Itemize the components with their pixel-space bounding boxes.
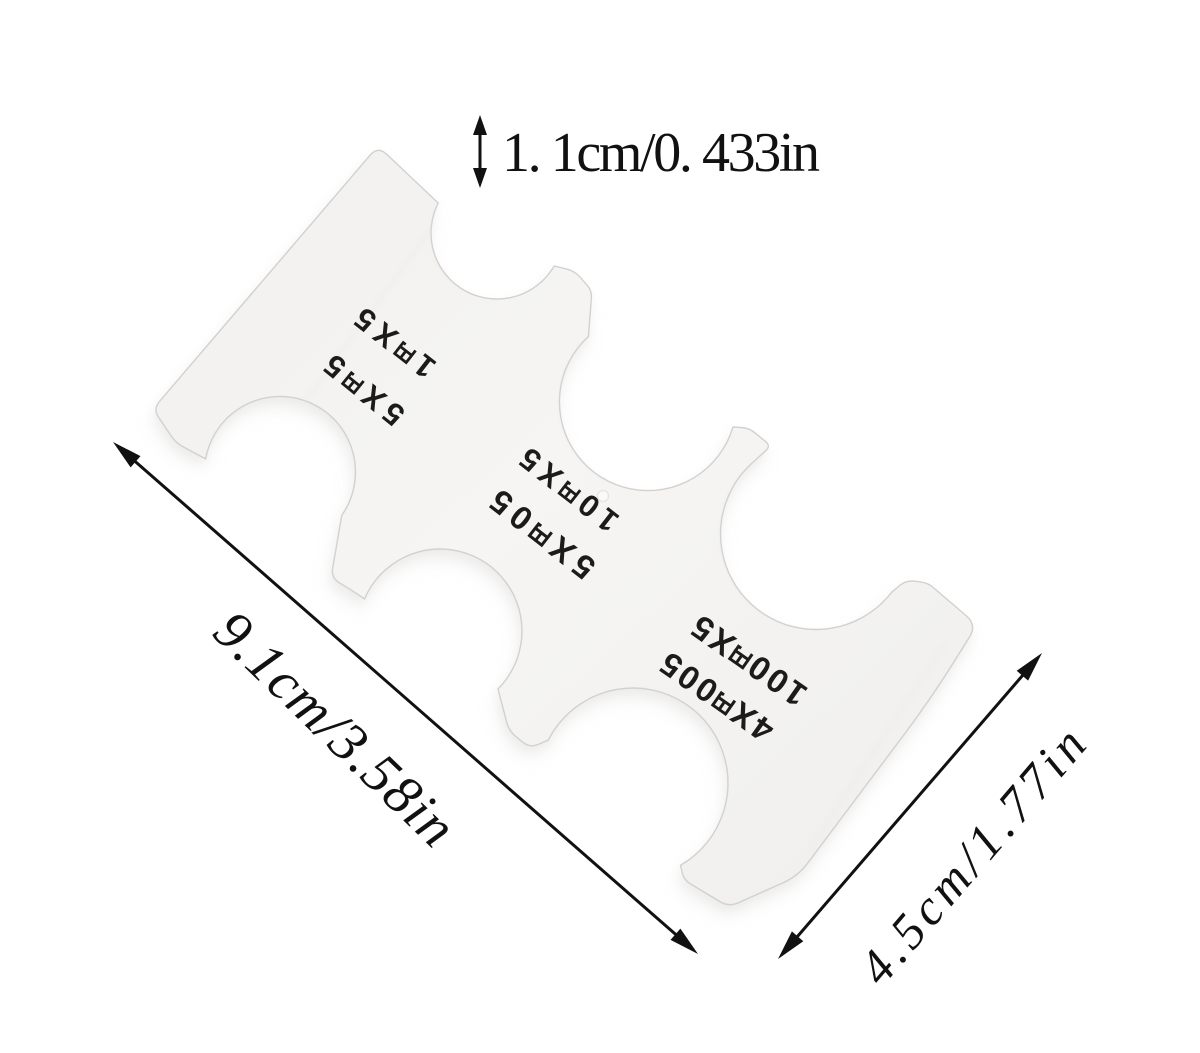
svg-text:9.1cm/3.58in: 9.1cm/3.58in [201,599,467,859]
svg-text:1. 1cm/0. 433in: 1. 1cm/0. 433in [502,122,820,184]
